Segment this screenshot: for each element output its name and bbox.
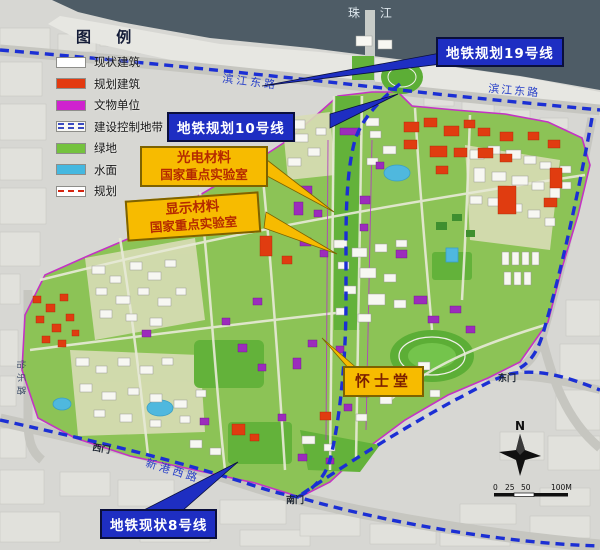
legend-swatch-control-zone — [56, 121, 86, 132]
legend-swatch-planned — [56, 78, 86, 89]
legend-item-existing: 现状建筑 — [56, 56, 190, 68]
river-label: 珠 江 — [348, 6, 400, 20]
scale-50: 50 — [521, 483, 531, 492]
legend-swatch-existing — [56, 57, 86, 68]
scale-0: 0 — [493, 483, 498, 492]
scale-25: 25 — [505, 483, 515, 492]
compass-north-label: N — [515, 419, 525, 433]
legend-title: 图 例 — [76, 26, 190, 47]
legend-item-heritage: 文物单位 — [56, 99, 190, 111]
south-gate-label: 南门 — [286, 494, 304, 506]
legend-swatch-heritage — [56, 100, 86, 111]
campus-planning-map: 珠 江 滨江东路 滨江东路 新港西路 怡乐路 西门 南门 东门 N 0 25 5… — [0, 0, 600, 550]
legend-swatch-water — [56, 164, 86, 175]
callout-optoelectronic-lab: 光电材料 国家重点实验室 — [140, 146, 268, 187]
legend-swatch-plan-line — [56, 186, 86, 197]
legend-swatch-green — [56, 143, 86, 154]
opto-lab-line1: 光电材料 — [149, 150, 259, 167]
callout-swasey-hall: 怀士堂 — [343, 366, 424, 397]
callout-metro-line-10: 地铁规划10号线 — [167, 112, 295, 142]
opto-lab-line2: 国家重点实验室 — [149, 167, 259, 183]
callout-metro-line-8: 地铁现状8号线 — [100, 509, 217, 539]
scale-100: 100M — [551, 483, 572, 492]
callout-metro-line-19: 地铁规划19号线 — [436, 37, 564, 67]
legend-item-plan-line: 规划 — [56, 185, 190, 197]
legend-item-planned: 规划建筑 — [56, 78, 190, 90]
road-label-yile: 怡乐路 — [15, 360, 27, 399]
east-gate-label: 东门 — [498, 372, 516, 384]
